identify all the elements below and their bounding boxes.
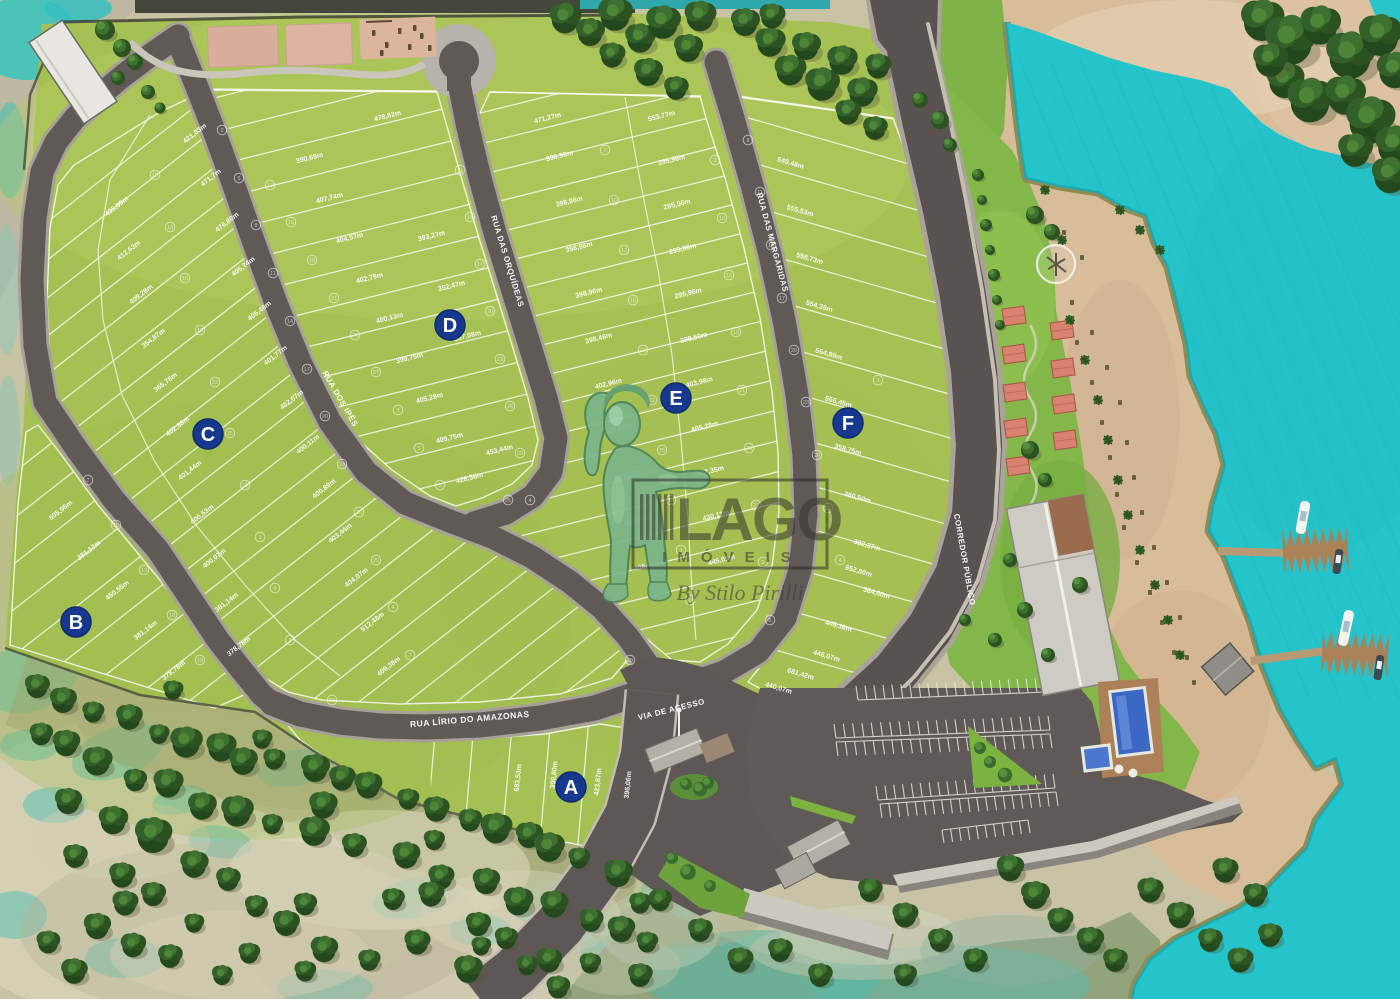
svg-text:23: 23 xyxy=(497,357,503,363)
svg-text:By Stilo Pirilli: By Stilo Pirilli xyxy=(676,580,803,605)
svg-text:21: 21 xyxy=(739,388,745,394)
svg-text:8: 8 xyxy=(438,483,441,489)
svg-text:16: 16 xyxy=(169,613,175,619)
svg-text:18: 18 xyxy=(733,330,739,336)
svg-text:6: 6 xyxy=(273,586,276,592)
svg-text:LAGO: LAGO xyxy=(676,486,842,553)
svg-text:17: 17 xyxy=(477,262,483,268)
svg-text:10: 10 xyxy=(611,198,617,204)
svg-text:18: 18 xyxy=(309,258,315,264)
svg-text:D: D xyxy=(443,315,457,337)
svg-text:19: 19 xyxy=(640,348,646,354)
svg-text:4: 4 xyxy=(838,558,841,564)
svg-text:12: 12 xyxy=(719,216,725,222)
svg-text:28: 28 xyxy=(242,483,248,489)
svg-text:23: 23 xyxy=(339,462,345,468)
svg-text:23: 23 xyxy=(803,400,809,406)
svg-text:2: 2 xyxy=(220,128,223,134)
svg-text:25: 25 xyxy=(659,448,665,454)
svg-text:3: 3 xyxy=(876,378,879,384)
svg-text:5: 5 xyxy=(768,618,771,624)
svg-text:7: 7 xyxy=(86,478,89,484)
svg-text:26: 26 xyxy=(507,404,513,410)
svg-text:25: 25 xyxy=(227,431,233,437)
svg-text:22: 22 xyxy=(212,380,218,386)
svg-text:12: 12 xyxy=(267,183,273,189)
svg-text:20: 20 xyxy=(791,348,797,354)
svg-text:24: 24 xyxy=(352,333,358,339)
svg-text:17: 17 xyxy=(304,367,310,373)
svg-text:11: 11 xyxy=(270,271,276,277)
svg-text:24: 24 xyxy=(746,446,752,452)
svg-text:27: 27 xyxy=(373,370,379,376)
svg-text:26: 26 xyxy=(814,453,820,459)
svg-text:3: 3 xyxy=(258,535,261,541)
svg-text:IMÓVEIS: IMÓVEIS xyxy=(662,548,802,566)
svg-text:22: 22 xyxy=(649,398,655,404)
svg-text:C: C xyxy=(201,424,215,446)
svg-text:16: 16 xyxy=(630,298,636,304)
svg-text:22: 22 xyxy=(329,698,335,704)
svg-text:2: 2 xyxy=(396,408,399,414)
svg-text:5: 5 xyxy=(417,446,420,452)
svg-text:15: 15 xyxy=(288,220,294,226)
svg-text:13: 13 xyxy=(167,225,173,231)
svg-text:7: 7 xyxy=(408,653,411,659)
svg-text:B: B xyxy=(69,612,83,634)
svg-text:14: 14 xyxy=(467,215,473,221)
svg-text:28: 28 xyxy=(627,658,633,664)
svg-text:29: 29 xyxy=(373,558,379,564)
svg-text:10: 10 xyxy=(152,173,158,179)
svg-text:29: 29 xyxy=(517,451,523,457)
svg-text:25: 25 xyxy=(505,498,511,504)
svg-text:13: 13 xyxy=(141,568,147,574)
svg-text:26: 26 xyxy=(356,510,362,516)
svg-text:20: 20 xyxy=(487,309,493,315)
svg-text:8: 8 xyxy=(254,223,257,229)
svg-text:14: 14 xyxy=(287,319,293,325)
svg-text:7: 7 xyxy=(603,148,606,154)
svg-text:20: 20 xyxy=(322,414,328,420)
svg-text:13: 13 xyxy=(621,248,627,254)
svg-text:19: 19 xyxy=(197,658,203,664)
svg-text:10: 10 xyxy=(113,523,119,529)
svg-text:5: 5 xyxy=(237,176,240,182)
svg-text:9: 9 xyxy=(288,638,291,644)
svg-text:4: 4 xyxy=(391,605,394,611)
svg-text:16: 16 xyxy=(182,276,188,282)
svg-text:8: 8 xyxy=(746,138,749,144)
svg-text:17: 17 xyxy=(779,296,785,302)
svg-text:4: 4 xyxy=(528,498,531,504)
svg-text:21: 21 xyxy=(331,296,337,302)
svg-text:F: F xyxy=(842,413,854,435)
svg-text:9: 9 xyxy=(713,158,716,164)
svg-text:11: 11 xyxy=(457,168,463,174)
svg-text:A: A xyxy=(564,777,578,799)
svg-text:19: 19 xyxy=(197,328,203,334)
svg-text:E: E xyxy=(669,388,682,410)
svg-text:15: 15 xyxy=(726,273,732,279)
